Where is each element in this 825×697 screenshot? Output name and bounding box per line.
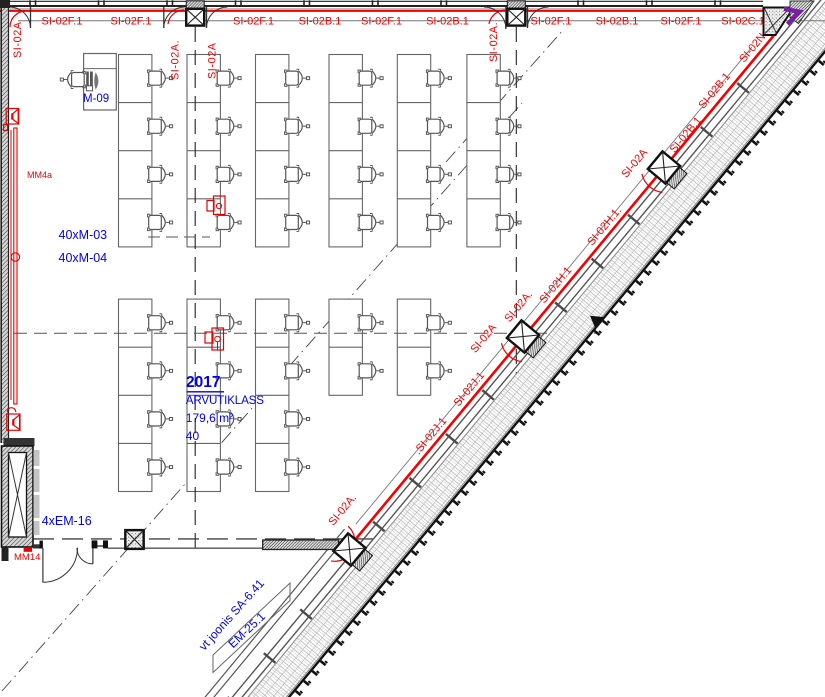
svg-text:SI-02F.1: SI-02F.1 bbox=[531, 16, 572, 28]
svg-text:SI-02C.1: SI-02C.1 bbox=[721, 16, 764, 28]
svg-text:SI-02A: SI-02A bbox=[207, 42, 219, 79]
svg-text:MM14: MM14 bbox=[14, 552, 40, 563]
svg-text:SI-02B.1: SI-02B.1 bbox=[299, 16, 342, 28]
svg-text:SI-02F.1: SI-02F.1 bbox=[361, 16, 402, 28]
svg-text:40xM-04: 40xM-04 bbox=[59, 251, 108, 265]
svg-text:MM4a: MM4a bbox=[27, 170, 52, 180]
svg-text:4xEM-16: 4xEM-16 bbox=[42, 514, 92, 528]
svg-text:SI-02F.1: SI-02F.1 bbox=[111, 16, 152, 28]
svg-text:M-09: M-09 bbox=[83, 93, 109, 105]
svg-text:SI-02A: SI-02A bbox=[12, 21, 24, 58]
svg-text:SI-02A.: SI-02A. bbox=[170, 40, 182, 80]
svg-text:SI-02F.1: SI-02F.1 bbox=[661, 16, 702, 28]
svg-text:2017: 2017 bbox=[186, 374, 220, 391]
svg-text:SI-02F.1: SI-02F.1 bbox=[42, 16, 83, 28]
svg-text:SI-02A.: SI-02A. bbox=[488, 22, 500, 62]
svg-text:40: 40 bbox=[186, 429, 200, 443]
svg-text:SI-02B.1: SI-02B.1 bbox=[426, 16, 469, 28]
svg-text:179,6 m²: 179,6 m² bbox=[186, 411, 233, 425]
svg-text:SI-02F.1: SI-02F.1 bbox=[233, 16, 274, 28]
svg-text:40xM-03: 40xM-03 bbox=[59, 228, 108, 242]
svg-text:ARVUTIKLASS: ARVUTIKLASS bbox=[186, 394, 264, 407]
svg-text:SI-02B.1: SI-02B.1 bbox=[596, 16, 639, 28]
